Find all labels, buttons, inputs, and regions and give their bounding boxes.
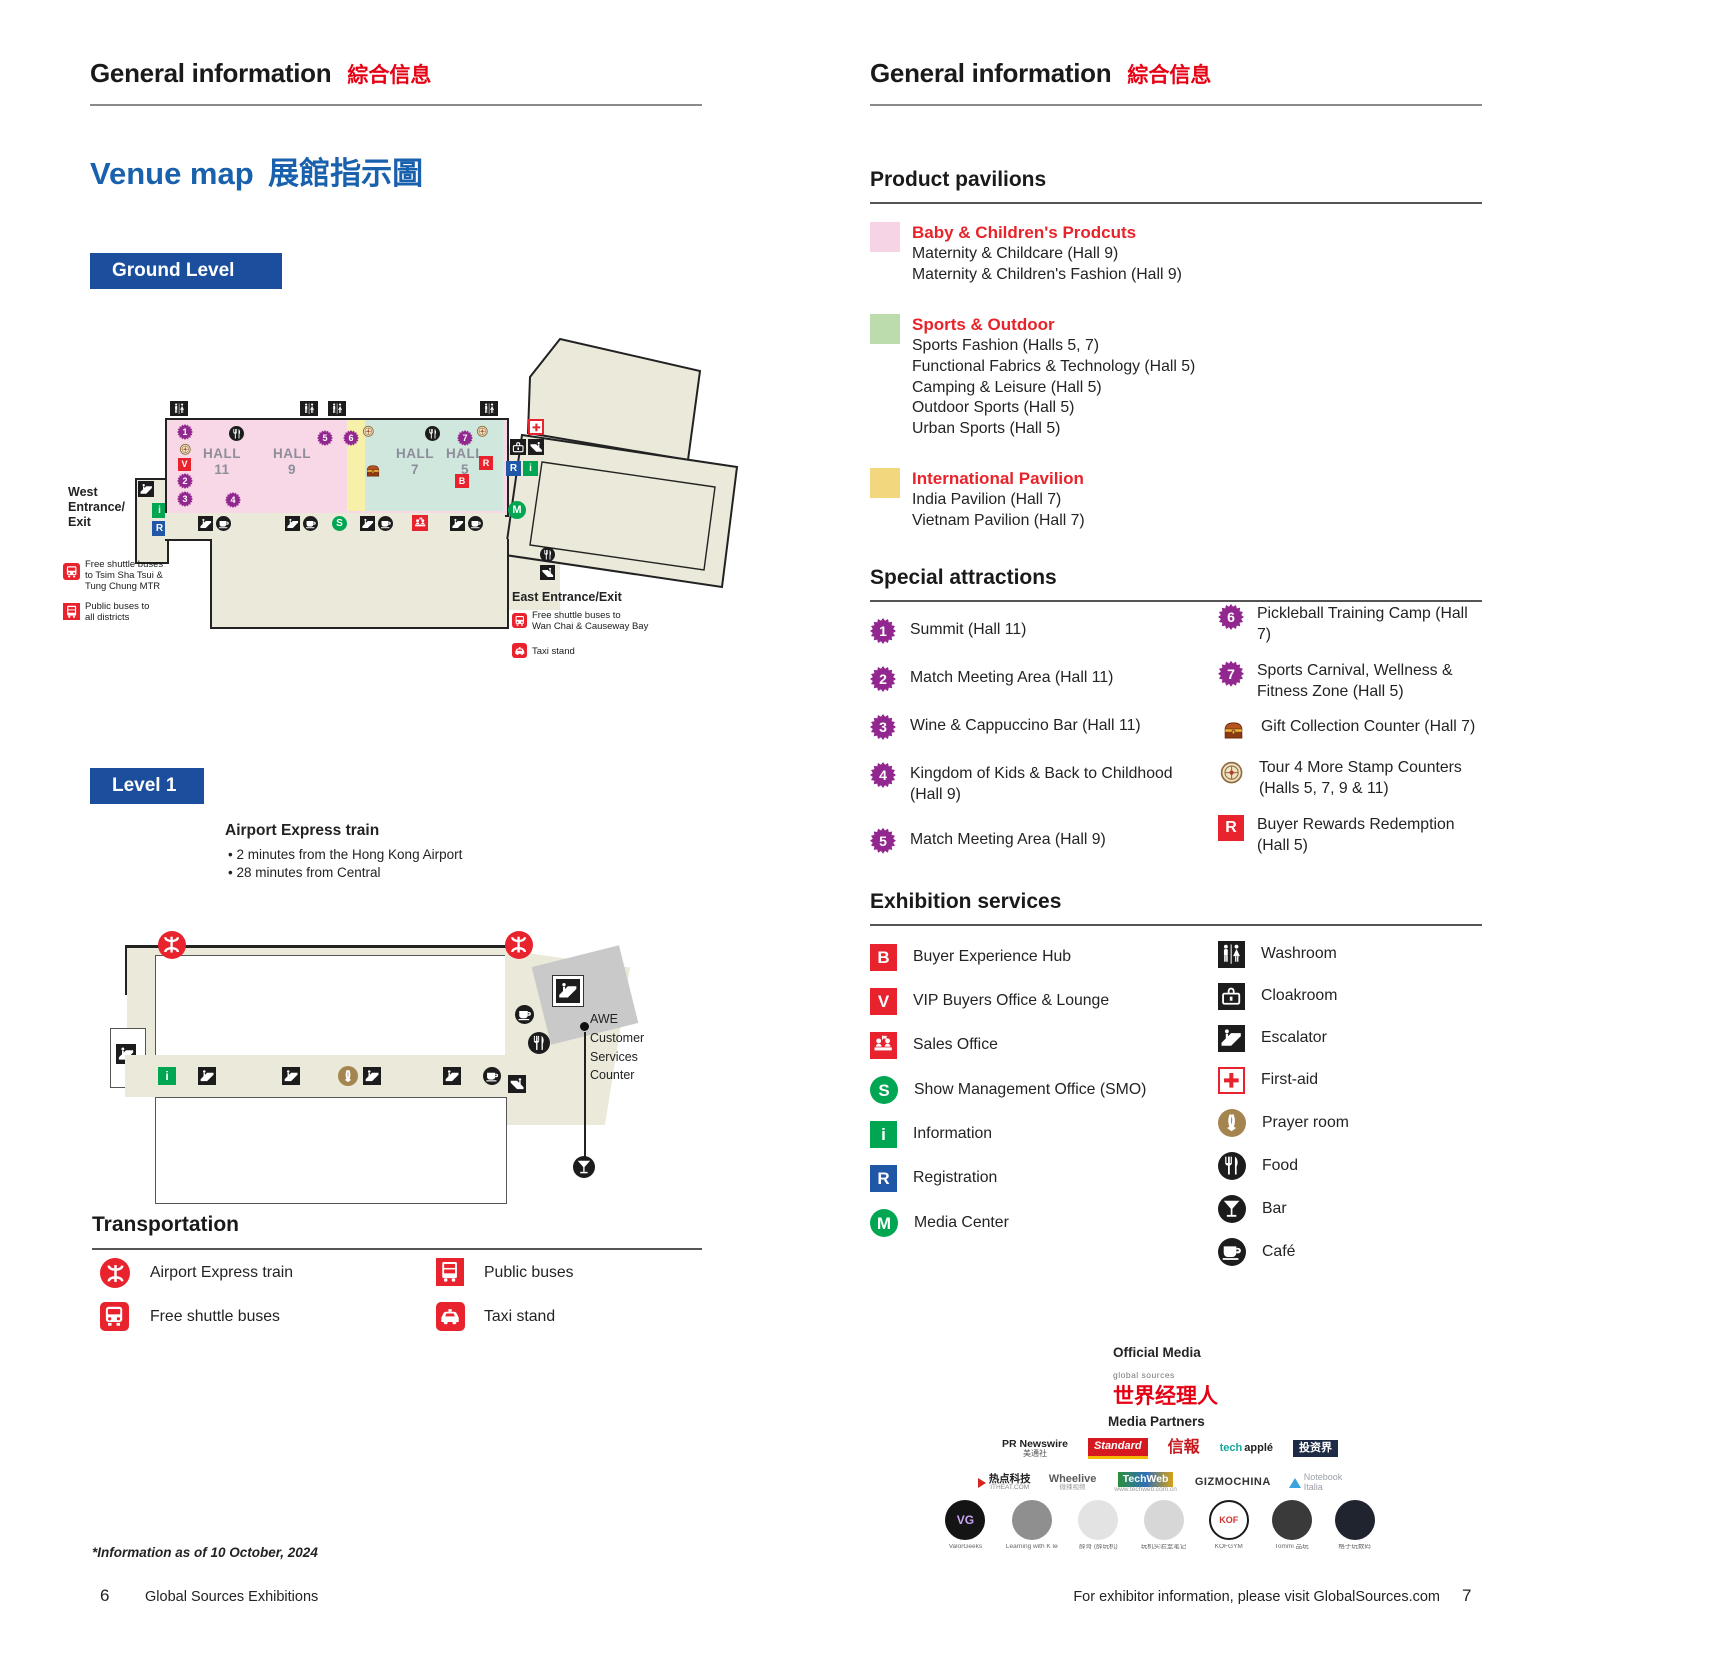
hall-name: HALL <box>396 446 434 461</box>
page-number-left: 6 <box>100 1586 109 1606</box>
media-center-icon: M <box>508 501 526 519</box>
gift-chest-icon <box>1218 717 1248 743</box>
avatar <box>1012 1500 1052 1540</box>
escalator-icon <box>1218 1025 1245 1052</box>
escalator-icon <box>363 1067 381 1085</box>
east-shuttle-label: Free shuttle buses to Wan Chai & Causewa… <box>532 610 682 632</box>
food-icon <box>425 426 440 441</box>
service-row: Bar <box>1218 1195 1349 1223</box>
service-row: Escalator <box>1218 1025 1349 1052</box>
logo-wheelive: Wheelive 微辣视频 <box>1049 1474 1097 1492</box>
venue-title-en: Venue map <box>90 156 254 191</box>
footnote: *Information as of 10 October, 2024 <box>92 1545 318 1560</box>
transportation-title: Transportation <box>92 1213 239 1237</box>
page-number-right: 7 <box>1462 1586 1471 1606</box>
attraction-badge: 4 <box>870 762 896 788</box>
service-row: Washroom <box>1218 941 1349 968</box>
service-row: R Registration <box>870 1165 1146 1192</box>
first-aid-icon <box>1218 1067 1245 1094</box>
smo-icon: S <box>870 1076 898 1104</box>
venue-title-zh: 展館指示圖 <box>268 156 423 191</box>
hall-num: 11 <box>214 462 229 477</box>
attraction-row: Gift Collection Counter (Hall 7) <box>1218 717 1486 743</box>
avatar-caption: Tommi 品玩 <box>1275 1544 1309 1551</box>
level1-corridor <box>125 1055 527 1097</box>
partner-avatar: VG ValorGeeks <box>945 1500 986 1551</box>
page-title: General information <box>870 58 1111 88</box>
official-media-label: Official Media <box>1113 1345 1201 1360</box>
escalator-icon <box>198 1067 216 1085</box>
attraction-row: 7 Sports Carnival, Wellness & Fitness Zo… <box>1218 661 1486 703</box>
footer-left-text: Global Sources Exhibitions <box>145 1589 318 1605</box>
pavilion-item: Functional Fabrics & Technology (Hall 5) <box>912 357 1195 378</box>
attraction-row: 2 Match Meeting Area (Hall 11) <box>870 666 1205 692</box>
logo-text: www.techweb.com.cn <box>1114 1487 1177 1494</box>
avatar-caption: 薛哥 (薛玩机) <box>1079 1544 1118 1551</box>
information-icon: i <box>870 1121 897 1148</box>
attraction-text: Gift Collection Counter (Hall 7) <box>1261 717 1475 738</box>
attraction-row: Tour 4 More Stamp Counters (Halls 5, 7, … <box>1218 758 1486 800</box>
logo-text: tech <box>1220 1443 1243 1455</box>
media-partners-row-2: 热点科技 ITHEAT.COM Wheelive 微辣视频 TechWeb ww… <box>940 1472 1380 1494</box>
attraction-badge: 7 <box>1218 661 1244 687</box>
pink-swatch <box>870 222 900 252</box>
service-label: Escalator <box>1261 1028 1327 1049</box>
escalator-icon <box>360 516 375 531</box>
food-icon <box>540 547 555 562</box>
escalator-icon <box>198 516 213 531</box>
buyer-hub-icon: B <box>455 474 469 488</box>
stamp-counter-icon <box>1218 758 1246 786</box>
service-label: First-aid <box>1261 1070 1318 1091</box>
pavilion-name: Sports & Outdoor <box>912 314 1195 336</box>
pavilion-item: Vietnam Pavilion (Hall 7) <box>912 511 1085 532</box>
shuttle-bus-icon <box>512 613 527 628</box>
partner-avatar: 薛哥 (薛玩机) <box>1078 1500 1119 1551</box>
airport-express-bullet-1: • 2 minutes from the Hong Kong Airport <box>228 847 462 862</box>
attraction-1-badge: 1 <box>177 424 193 440</box>
hall-name: HALL <box>203 446 241 461</box>
service-row: Cloakroom <box>1218 983 1349 1010</box>
sales-office-icon <box>870 1032 897 1059</box>
prayer-room-icon <box>338 1066 358 1086</box>
washroom-icon <box>328 401 346 416</box>
attractions-right-column: 6 Pickleball Training Camp (Hall 7) 7 Sp… <box>1218 604 1486 857</box>
cafe-icon <box>303 516 318 531</box>
media-partners-label: Media Partners <box>1108 1414 1205 1429</box>
logo-text: PR Newswire <box>1002 1439 1068 1450</box>
service-label: Food <box>1262 1156 1298 1177</box>
public-bus-icon <box>436 1258 464 1286</box>
pavilion-item: Maternity & Children's Fashion (Hall 9) <box>912 265 1182 286</box>
gift-chest-icon <box>363 462 383 480</box>
service-row: S Show Management Office (SMO) <box>870 1076 1146 1104</box>
taxi-icon <box>436 1302 465 1331</box>
logo-text: Standard <box>1094 1441 1142 1453</box>
header-rule <box>870 104 1482 106</box>
logo-text: applé <box>1244 1443 1273 1455</box>
services-rule <box>870 924 1482 926</box>
washroom-icon <box>1218 941 1245 968</box>
cloakroom-icon <box>1218 983 1245 1010</box>
pavilion-item: India Pavilion (Hall 7) <box>912 490 1085 511</box>
logo-pr-newswire: PR Newswire 美通社 <box>1002 1439 1068 1458</box>
attraction-badge: 5 <box>870 828 896 854</box>
attractions-rule <box>870 600 1482 602</box>
service-label: Media Center <box>914 1213 1009 1234</box>
service-label: Bar <box>1262 1199 1287 1220</box>
attraction-4-badge: 4 <box>225 492 241 508</box>
attraction-row: R Buyer Rewards Redemption (Hall 5) <box>1218 815 1486 857</box>
mtr-icon <box>505 931 533 959</box>
logo-itheat: 热点科技 ITHEAT.COM <box>978 1474 1031 1492</box>
avatar-caption: 玩机实验室笔记 <box>1141 1544 1187 1551</box>
attraction-badge: 3 <box>870 714 896 740</box>
attraction-text: Kingdom of Kids & Back to Childhood (Hal… <box>910 762 1180 806</box>
green-swatch <box>870 314 900 344</box>
transport-label: Free shuttle buses <box>150 1307 280 1328</box>
airport-express-title: Airport Express train <box>225 822 379 840</box>
buyer-hub-icon: B <box>870 944 897 971</box>
washroom-icon <box>170 401 188 416</box>
attraction-text: Match Meeting Area (Hall 11) <box>910 666 1113 689</box>
vip-office-icon: V <box>870 988 897 1015</box>
lower-void <box>155 1097 507 1204</box>
registration-icon: R <box>870 1165 897 1192</box>
mtr-icon <box>158 931 186 959</box>
public-bus-icon <box>63 603 80 620</box>
page-title-zh: 綜合信息 <box>347 64 431 87</box>
service-row: M Media Center <box>870 1209 1146 1237</box>
avatar <box>1272 1500 1312 1540</box>
attraction-badge: 1 <box>870 618 896 644</box>
cafe-icon <box>378 516 393 531</box>
bar-icon <box>573 1156 595 1178</box>
cafe-icon <box>468 516 483 531</box>
avatar-caption: KOFGYM <box>1215 1544 1243 1551</box>
counter-dot <box>580 1022 589 1031</box>
venue-map-spread: General information綜合信息 Venue map 展館指示圖 … <box>0 0 1732 1654</box>
buyer-rewards-icon: R <box>479 456 493 470</box>
hall-11-label: HALL 11 <box>192 446 252 477</box>
escalator-icon <box>443 1067 461 1085</box>
first-aid-icon <box>528 419 544 435</box>
itheat-arrow-icon <box>978 1478 986 1488</box>
transportation-rule <box>92 1248 702 1250</box>
shuttle-bus-icon <box>63 563 80 580</box>
attraction-5-badge: 5 <box>317 430 333 446</box>
ground-level-label: Ground Level <box>112 260 234 282</box>
avatar-caption: ValorGeeks <box>949 1544 982 1551</box>
west-entrance-label: West Entrance/ Exit <box>68 485 125 530</box>
service-row: V VIP Buyers Office & Lounge <box>870 988 1146 1015</box>
pavilion-name: Baby & Children's Prodcuts <box>912 222 1182 244</box>
service-label: Washroom <box>1261 944 1337 965</box>
attraction-row: 1 Summit (Hall 11) <box>870 618 1205 644</box>
vip-office-icon: V <box>178 458 191 471</box>
stamp-counter-icon <box>361 424 375 438</box>
attraction-badge: 6 <box>1218 604 1244 630</box>
level-1-map: Level 1 Airport Express train • 2 minute… <box>60 760 760 1205</box>
service-row: Food <box>1218 1152 1349 1180</box>
logo-text: 微辣视频 <box>1060 1485 1086 1492</box>
level-1-label: Level 1 <box>112 775 176 797</box>
pavilion-item: Urban Sports (Hall 5) <box>912 419 1195 440</box>
washroom-icon <box>300 401 318 416</box>
hall-9-label: HALL 9 <box>262 446 322 477</box>
media-partners-row-1: PR Newswire 美通社 Standard 信報 tech applé 投… <box>960 1438 1380 1459</box>
service-label: Information <box>913 1124 992 1145</box>
taxi-icon <box>512 643 527 658</box>
buyer-rewards-icon: R <box>1218 815 1244 841</box>
smo-icon: S <box>332 516 347 531</box>
partner-avatar: 格子玩数码 <box>1334 1500 1375 1551</box>
attraction-6-badge: 6 <box>343 430 359 446</box>
service-row: Sales Office <box>870 1032 1146 1059</box>
cafe-icon <box>515 1005 534 1024</box>
attraction-text: Summit (Hall 11) <box>910 618 1026 641</box>
escalator-icon <box>138 481 154 497</box>
attraction-text: Sports Carnival, Wellness & Fitness Zone… <box>1257 661 1486 703</box>
food-icon <box>229 426 244 441</box>
washroom-icon <box>480 401 498 416</box>
pavilions-list: Baby & Children's Prodcuts Maternity & C… <box>870 222 1470 532</box>
logo-gizmochina: GIZMOCHINA <box>1195 1477 1271 1489</box>
left-page-header: General information綜合信息 <box>90 58 431 89</box>
footer-right-text: For exhibitor information, please visit … <box>870 1589 1440 1605</box>
header-rule <box>90 104 702 106</box>
attraction-row: 6 Pickleball Training Camp (Hall 7) <box>1218 604 1486 646</box>
logo-tech-apple: tech applé <box>1220 1443 1273 1455</box>
pavilion-group-baby: Baby & Children's Prodcuts Maternity & C… <box>870 222 1470 286</box>
venue-map-title: Venue map 展館指示圖 <box>90 148 423 193</box>
logo-the-standard: Standard <box>1088 1438 1148 1459</box>
escalator-down-icon <box>540 565 555 580</box>
right-page-header: General information綜合信息 <box>870 58 1211 89</box>
bar-pointer-line <box>584 1032 586 1158</box>
service-row: Prayer room <box>1218 1109 1349 1137</box>
attraction-row: 3 Wine & Cappuccino Bar (Hall 11) <box>870 714 1205 740</box>
ground-level-badge: Ground Level <box>90 253 282 289</box>
service-label: Café <box>1262 1242 1295 1263</box>
escalator-icon <box>282 1067 300 1085</box>
hall-num: 7 <box>411 462 419 477</box>
avatar-caption: Learning with K lee <box>1006 1544 1058 1551</box>
transport-label: Public buses <box>484 1263 574 1284</box>
logo-notebook-italia: Notebook Italia <box>1289 1473 1343 1492</box>
attraction-text: Buyer Rewards Redemption (Hall 5) <box>1257 815 1486 857</box>
service-row: B Buyer Experience Hub <box>870 944 1146 971</box>
attraction-text: Pickleball Training Camp (Hall 7) <box>1257 604 1486 646</box>
attraction-3-badge: 3 <box>177 491 193 507</box>
pavilion-group-sports: Sports & Outdoor Sports Fashion (Halls 5… <box>870 314 1470 440</box>
cafe-icon <box>483 1067 501 1085</box>
lower-hall-block <box>210 539 509 629</box>
service-label: Cloakroom <box>1261 986 1337 1007</box>
east-entrance-label: East Entrance/Exit <box>512 590 672 604</box>
service-label: VIP Buyers Office & Lounge <box>913 991 1109 1012</box>
avatar <box>1335 1500 1375 1540</box>
service-label: Show Management Office (SMO) <box>914 1080 1146 1101</box>
pavilions-title: Product pavilions <box>870 168 1046 192</box>
logo-text: ITHEAT.COM <box>990 1485 1029 1492</box>
page-title-zh: 綜合信息 <box>1127 64 1211 87</box>
logo-hkej: 信報 <box>1168 1440 1200 1457</box>
avatar: VG <box>945 1500 985 1540</box>
avatar <box>1144 1500 1184 1540</box>
sales-office-icon <box>412 515 428 531</box>
logo-techweb: TechWeb www.techweb.com.cn <box>1114 1472 1177 1494</box>
service-label: Prayer room <box>1262 1113 1349 1134</box>
global-sources-small-logo: global sources <box>1113 1370 1175 1380</box>
hall-strip: HALL 11 HALL 9 HALL 7 HALL 5 1 V 2 3 4 5 <box>165 418 509 517</box>
hall-name: HALL <box>273 446 311 461</box>
service-label: Registration <box>913 1168 997 1189</box>
logo-text: 投资界 <box>1299 1443 1332 1455</box>
media-partners-avatars: VG ValorGeeks Learning with K lee 薛哥 (薛玩… <box>945 1500 1375 1551</box>
media-center-icon: M <box>870 1209 898 1237</box>
yellow-swatch <box>870 468 900 498</box>
stamp-counter-icon <box>178 442 192 456</box>
attraction-row: 4 Kingdom of Kids & Back to Childhood (H… <box>870 762 1205 806</box>
attraction-text: Wine & Cappuccino Bar (Hall 11) <box>910 714 1141 737</box>
avatar <box>1078 1500 1118 1540</box>
attraction-text: Match Meeting Area (Hall 9) <box>910 828 1106 851</box>
pavilion-item: Outdoor Sports (Hall 5) <box>912 398 1195 419</box>
escalator-box <box>552 975 584 1007</box>
services-right-column: Washroom Cloakroom Escalator First-aid P… <box>1218 941 1349 1266</box>
escalator-icon <box>285 516 300 531</box>
logo-text: 美通社 <box>1023 1450 1047 1458</box>
shuttle-bus-icon <box>100 1302 129 1331</box>
services-title: Exhibition services <box>870 890 1061 914</box>
escalator-icon <box>450 516 465 531</box>
cloakroom-icon <box>510 439 526 455</box>
food-icon <box>1218 1152 1246 1180</box>
attraction-row: 5 Match Meeting Area (Hall 9) <box>870 828 1205 854</box>
attraction-7-badge: 7 <box>457 430 473 446</box>
ground-level-map: i R West Entrance/ Exit HALL 11 HALL 9 H… <box>60 335 760 675</box>
services-left-column: B Buyer Experience Hub V VIP Buyers Offi… <box>870 944 1146 1237</box>
official-media-logo: 世界经理人 <box>1113 1380 1218 1410</box>
taxi-stand-label: Taxi stand <box>532 646 652 657</box>
level-1-badge: Level 1 <box>90 768 204 804</box>
pavilion-item: Maternity & Childcare (Hall 9) <box>912 244 1182 265</box>
attraction-2-badge: 2 <box>177 473 193 489</box>
transport-label: Taxi stand <box>484 1307 555 1328</box>
pavilion-item: Sports Fashion (Halls 5, 7) <box>912 336 1195 357</box>
service-row: First-aid <box>1218 1067 1349 1094</box>
service-row: Café <box>1218 1238 1349 1266</box>
cafe-icon <box>216 516 231 531</box>
west-shuttle-label: Free shuttle buses to Tsim Sha Tsui & Tu… <box>85 559 215 593</box>
awe-counter-label: AWE Customer Services Counter <box>590 1010 644 1085</box>
service-label: Sales Office <box>913 1035 998 1056</box>
logo-text: GIZMOCHINA <box>1195 1477 1271 1489</box>
cafe-icon <box>1218 1238 1246 1266</box>
attractions-left-column: 1 Summit (Hall 11) 2 Match Meeting Area … <box>870 618 1205 854</box>
registration-icon: R <box>506 461 521 476</box>
notebook-italia-icon <box>1289 1478 1301 1488</box>
escalator-down-icon <box>508 1075 526 1093</box>
attraction-text: Tour 4 More Stamp Counters (Halls 5, 7, … <box>1259 758 1486 800</box>
partner-avatar: KOF KOFGYM <box>1208 1500 1249 1551</box>
partner-avatar: 玩机实验室笔记 <box>1141 1500 1187 1551</box>
public-bus-label: Public buses to all districts <box>85 601 215 623</box>
upper-void <box>155 955 507 1057</box>
information-icon: i <box>158 1067 176 1085</box>
attraction-badge: 2 <box>870 666 896 692</box>
logo-pedaily: 投资界 <box>1293 1440 1338 1458</box>
pavilion-name: International Pavilion <box>912 468 1085 490</box>
logo-text: 信報 <box>1168 1440 1200 1457</box>
partner-avatar: Tommi 品玩 <box>1271 1500 1312 1551</box>
attractions-title: Special attractions <box>870 566 1057 590</box>
logo-text: TechWeb <box>1118 1472 1174 1487</box>
logo-text: Italia <box>1304 1483 1323 1492</box>
food-icon <box>528 1032 550 1054</box>
escalator-down-icon <box>528 439 544 455</box>
information-icon: i <box>523 461 538 476</box>
transport-label: Airport Express train <box>150 1263 293 1284</box>
pavilions-rule <box>870 202 1482 204</box>
page-title: General information <box>90 58 331 88</box>
service-row: i Information <box>870 1121 1146 1148</box>
hall-num: 9 <box>288 462 296 477</box>
bar-icon <box>1218 1195 1246 1223</box>
avatar: KOF <box>1209 1500 1249 1540</box>
service-label: Buyer Experience Hub <box>913 947 1071 968</box>
airport-express-bullet-2: • 28 minutes from Central <box>228 865 381 880</box>
stamp-counter-icon <box>475 424 489 438</box>
mtr-icon <box>100 1258 130 1288</box>
partner-avatar: Learning with K lee <box>1008 1500 1056 1551</box>
pavilion-item: Camping & Leisure (Hall 5) <box>912 378 1195 399</box>
pavilion-group-international: International Pavilion India Pavilion (H… <box>870 468 1470 532</box>
avatar-caption: 格子玩数码 <box>1338 1544 1371 1551</box>
prayer-room-icon <box>1218 1109 1246 1137</box>
